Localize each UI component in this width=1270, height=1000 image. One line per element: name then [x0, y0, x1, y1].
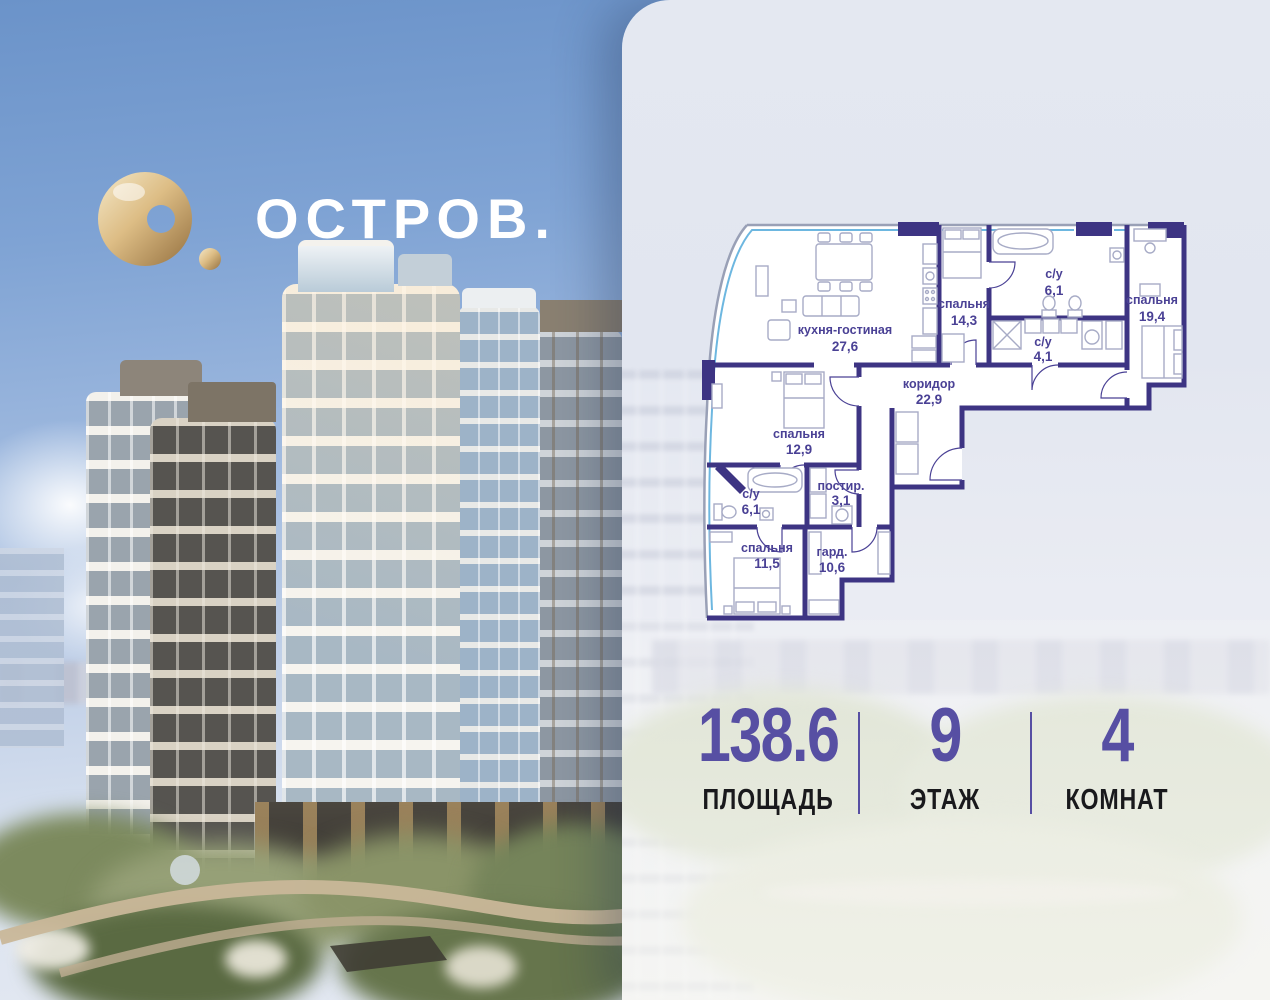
- tower-penthouse: [540, 300, 622, 332]
- room-label-area: 3,1: [832, 493, 851, 508]
- listing-card: ОСТРОВ.: [0, 0, 1270, 1000]
- room-label-area: 11,5: [754, 556, 780, 571]
- pergola-roof: [330, 936, 447, 972]
- room-label-name: спальня: [938, 297, 990, 311]
- info-panel: кухня-гостиная 27,6 спальня 14,3 с/у 6,1…: [622, 0, 1270, 1000]
- room-label-name: коридор: [903, 377, 956, 391]
- room-label-area: 19,4: [1139, 309, 1166, 324]
- rooms-value: 4: [1101, 700, 1132, 772]
- landscaped-park: [0, 818, 640, 1000]
- room-label-name: с/у: [1045, 267, 1062, 281]
- room-label-name: с/у: [1034, 335, 1051, 349]
- room-label-area: 6,1: [742, 502, 761, 517]
- room-label-area: 12,9: [786, 442, 812, 457]
- floor-value: 9: [929, 700, 960, 772]
- gold-torus-icon: [95, 170, 235, 278]
- floorplan-diagram: кухня-гостиная 27,6 спальня 14,3 с/у 6,1…: [702, 222, 1189, 628]
- room-label-name: кухня-гостиная: [798, 323, 892, 337]
- room-label-area: 4,1: [1034, 349, 1053, 364]
- room-label-area: 6,1: [1045, 283, 1064, 298]
- area-label: ПЛОЩАДЬ: [696, 784, 840, 817]
- room-label-name: с/у: [742, 487, 759, 501]
- stat-floor: 9 ЭТАЖ: [860, 700, 1030, 817]
- brand-logo: ОСТРОВ.: [95, 170, 565, 280]
- room-label-area: 27,6: [832, 339, 859, 354]
- rooms-label: КОМНАТ: [1049, 784, 1185, 817]
- room-label-name: спальня: [773, 427, 825, 441]
- tower-penthouse: [462, 288, 536, 308]
- park-walkway: [0, 818, 640, 1000]
- playground-slide: [170, 855, 200, 885]
- tower-penthouse: [188, 382, 276, 422]
- room-label-name: спальня: [1126, 293, 1178, 307]
- room-label-name: постир.: [818, 479, 865, 493]
- room-label-name: спальня: [741, 541, 793, 555]
- stat-rooms: 4 КОМНАТ: [1032, 700, 1202, 817]
- room-label-area: 10,6: [819, 560, 846, 575]
- background-building: [0, 548, 64, 748]
- room-label-area: 22,9: [916, 392, 942, 407]
- room-label-name: гард.: [817, 545, 848, 559]
- apartment-stats: 138.6 ПЛОЩАДЬ 9 ЭТАЖ 4 КОМНАТ: [678, 700, 1202, 817]
- stat-area: 138.6 ПЛОЩАДЬ: [678, 700, 858, 817]
- brand-name: ОСТРОВ.: [255, 186, 557, 251]
- room-label-area: 14,3: [951, 313, 978, 328]
- floor-label: ЭТАЖ: [877, 784, 1013, 817]
- area-value: 138.6: [698, 700, 839, 772]
